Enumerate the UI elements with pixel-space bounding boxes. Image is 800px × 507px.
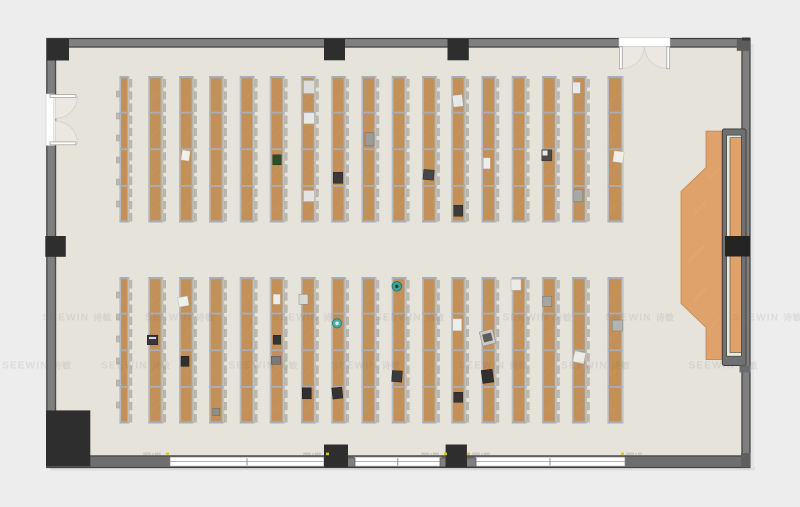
svg-text:SEEWIN 诗敏: SEEWIN 诗敏 [689,360,759,372]
svg-text:SEEWIN 诗敏: SEEWIN 诗敏 [733,312,800,324]
svg-text:2600 x 50: 2600 x 50 [626,452,642,456]
svg-text:SEEWIN 诗敏: SEEWIN 诗敏 [101,360,171,372]
svg-text:SEEWIN 诗敏: SEEWIN 诗敏 [459,360,529,372]
svg-text:2600 x 600: 2600 x 600 [303,452,321,456]
svg-text:SEEWIN 诗敏: SEEWIN 诗敏 [605,312,675,324]
svg-text:SEEWIN 诗敏: SEEWIN 诗敏 [503,312,573,324]
svg-text:2600 x 600: 2600 x 600 [421,452,439,456]
svg-text:SEEWIN 诗敏: SEEWIN 诗敏 [145,312,215,324]
svg-text:SEEWIN 诗敏: SEEWIN 诗敏 [561,360,631,372]
svg-text:SEEWIN 诗敏: SEEWIN 诗敏 [331,360,401,372]
svg-text:SEEWIN 诗敏: SEEWIN 诗敏 [375,312,445,324]
svg-text:1200 x 600: 1200 x 600 [143,452,161,456]
svg-text:SEEWIN 诗敏: SEEWIN 诗敏 [43,312,113,324]
svg-text:2600 x 600: 2600 x 600 [472,452,490,456]
svg-text:SEEWIN 诗敏: SEEWIN 诗敏 [229,360,299,372]
svg-text:SEEWIN 诗敏: SEEWIN 诗敏 [2,360,72,372]
svg-text:SEEWIN 诗敏: SEEWIN 诗敏 [273,312,343,324]
